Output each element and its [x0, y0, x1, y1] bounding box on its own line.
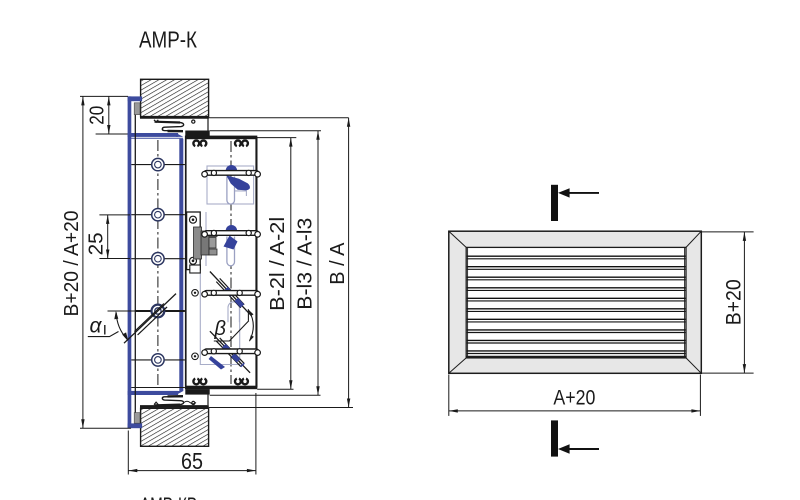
svg-text:20: 20: [86, 106, 108, 125]
svg-text:25: 25: [86, 232, 108, 255]
svg-text:B-l3 / A-l3: B-l3 / A-l3: [294, 218, 316, 310]
svg-text:B / A: B / A: [327, 242, 349, 285]
svg-text:β: β: [214, 318, 226, 340]
svg-text:A+20: A+20: [553, 385, 595, 409]
svg-text:АМР-КР: АМР-КР: [140, 493, 197, 500]
svg-text:B-2l / A-2l: B-2l / A-2l: [267, 217, 289, 311]
svg-text:B+20 / A+20: B+20 / A+20: [61, 211, 83, 317]
svg-text:АМР-К: АМР-К: [139, 27, 197, 53]
svg-text:α: α: [90, 315, 103, 338]
svg-text:65: 65: [181, 448, 203, 474]
svg-text:B+20: B+20: [721, 279, 745, 325]
